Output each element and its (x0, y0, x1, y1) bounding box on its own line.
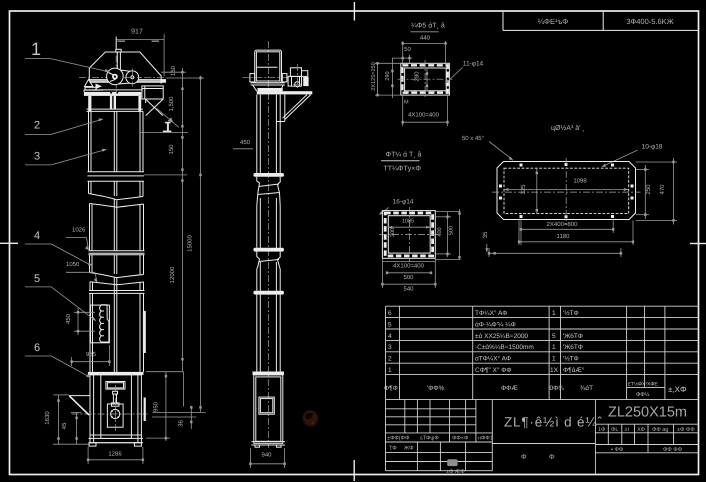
svg-text:1: 1 (552, 344, 556, 351)
svg-text:440: 440 (420, 35, 431, 42)
svg-text:4: 4 (34, 230, 40, 242)
svg-text:6: 6 (34, 342, 40, 354)
svg-text:15000: 15000 (187, 234, 194, 251)
svg-text:ΤΦ: ΤΦ (389, 446, 397, 452)
svg-text:3: 3 (388, 344, 392, 351)
svg-text:'½ΤΦ: '½ΤΦ (563, 310, 579, 317)
svg-text:1180: 1180 (557, 233, 571, 240)
svg-text:917: 917 (131, 29, 143, 36)
svg-text:XΦ: XΦ (637, 427, 646, 433)
svg-text:290: 290 (385, 71, 391, 80)
svg-text:ZL¶·ê½ì d é¼ˆ: ZL¶·ê½ì d é¼ˆ (504, 415, 603, 430)
svg-text:5: 5 (552, 333, 556, 340)
svg-text:¼ΦE¹ъΦ: ¼ΦE¹ъΦ (538, 17, 568, 26)
svg-text:ZL250X15m: ZL250X15m (608, 405, 687, 421)
svg-text:ЖΦ: ЖΦ (404, 446, 414, 452)
svg-text:M: M (404, 100, 409, 106)
svg-text:0Φ¼: 0Φ¼ (550, 385, 565, 392)
svg-text:11-φ14: 11-φ14 (463, 61, 484, 68)
svg-text:ΦΦ×Φ: ΦΦ×Φ (452, 436, 469, 442)
svg-text:36: 36 (178, 420, 185, 427)
svg-text:'ΦΦ%: 'ΦΦ% (427, 385, 445, 392)
svg-text:16-φ14: 16-φ14 (393, 199, 414, 206)
svg-text:цØ½A³ â′ ¸: цØ½A³ â′ ¸ (551, 124, 585, 132)
svg-text:CΦ¶" X° ΦΦ: CΦ¶" X° ΦΦ (475, 367, 512, 374)
svg-text:2: 2 (34, 120, 40, 132)
svg-text:1Φ: 1Φ (598, 427, 606, 433)
svg-text:6: 6 (388, 310, 392, 317)
svg-text:άΦ·¼Φ'¼ ¼Φ: άΦ·¼Φ'¼ ¼Φ (475, 321, 516, 328)
svg-text:45: 45 (61, 422, 68, 429)
svg-text:±ΦΦ(ΦΦ: ±ΦΦ(ΦΦ (387, 436, 410, 442)
svg-text:1X: 1X (550, 367, 559, 374)
svg-text:ΦΦ ag: ΦΦ ag (652, 427, 668, 433)
svg-text:35: 35 (482, 231, 489, 238)
svg-text:▪ ΦΦ: ▪ ΦΦ (611, 447, 624, 453)
svg-text:12000: 12000 (169, 266, 176, 283)
svg-text:280: 280 (414, 71, 421, 82)
svg-text:2X125=250: 2X125=250 (371, 62, 377, 90)
svg-text:ΦL: ΦL (611, 427, 618, 433)
svg-text:950: 950 (153, 401, 160, 412)
svg-text:άΤΦ¼X° AΦ: άΤΦ¼X° AΦ (475, 356, 511, 363)
svg-text:±Φ ΦΦ: ±Φ ΦΦ (677, 427, 695, 433)
svg-text:1630: 1630 (44, 411, 51, 425)
svg-text:ΦΦÆ: ΦΦÆ (501, 385, 518, 392)
svg-text:5: 5 (34, 273, 40, 285)
svg-text:1026: 1026 (72, 227, 86, 234)
svg-text:325: 325 (520, 184, 527, 195)
svg-text:¾άΤ: ¾άΤ (580, 385, 593, 392)
svg-text:1,500: 1,500 (168, 96, 175, 112)
svg-text:1: 1 (552, 356, 556, 363)
svg-text:±ά XX25¼B=2000: ±ά XX25¼B=2000 (475, 333, 528, 340)
svg-text:3Ф400-5.6KЖ: 3Ф400-5.6KЖ (626, 17, 673, 26)
svg-text:4X100=400: 4X100=400 (408, 112, 440, 119)
svg-text:450: 450 (240, 139, 251, 146)
svg-text:±Φ ÆΦ: ±Φ ÆΦ (446, 469, 465, 475)
svg-text:3: 3 (34, 151, 40, 163)
svg-text:1: 1 (31, 39, 41, 59)
svg-text:ΦΤ¼ ά Τ¸ â: ΦΤ¼ ά Τ¸ â (386, 151, 422, 159)
svg-text:940: 940 (261, 452, 272, 459)
svg-text:ΦΦ¼: ΦΦ¼ (636, 392, 650, 398)
svg-text:Φ: Φ (521, 454, 527, 461)
svg-text:250: 250 (645, 184, 652, 195)
svg-text:4: 4 (388, 333, 392, 340)
svg-text:Φ¶άÆ°: Φ¶άÆ° (563, 367, 585, 374)
svg-text:ΦΦ ΦΦ: ΦΦ ΦΦ (663, 447, 683, 453)
svg-text:·C±ά%¼B=1500mm: ·C±ά%¼B=1500mm (475, 344, 534, 351)
svg-text:1050: 1050 (66, 261, 80, 268)
svg-text:500: 500 (449, 226, 455, 235)
svg-text:±,XΦ: ±,XΦ (668, 385, 686, 394)
svg-text:1085: 1085 (402, 219, 414, 225)
svg-text:TΦ¼X° AΦ: TΦ¼X° AΦ (475, 310, 507, 317)
svg-text:985: 985 (86, 351, 97, 358)
svg-text:2X400=800: 2X400=800 (547, 221, 579, 228)
svg-text:300: 300 (390, 228, 396, 237)
svg-text:'Ж6ΤΦ: 'Ж6ΤΦ (563, 333, 583, 340)
svg-text:50: 50 (404, 46, 411, 53)
svg-text:Φ: Φ (549, 454, 555, 461)
svg-text:400: 400 (437, 227, 443, 236)
svg-text:ѕΤΦψΦ: ѕΤΦψΦ (420, 436, 439, 442)
svg-text:ΤΤ¼ΦΤу×Φ: ΤΤ¼ΦΤу×Φ (384, 166, 422, 173)
svg-text:5: 5 (388, 321, 392, 328)
svg-text:±I: ±I (625, 427, 630, 433)
svg-text:'Ж6ΤΦ: 'Ж6ΤΦ (563, 344, 583, 351)
svg-text:150: 150 (168, 144, 175, 155)
svg-text:1: 1 (388, 367, 392, 374)
svg-text:'½ΤΦ: '½ΤΦ (563, 356, 579, 363)
svg-text:470: 470 (659, 184, 666, 195)
svg-text:10-φ18: 10-φ18 (642, 144, 663, 151)
svg-text:500: 500 (403, 274, 414, 281)
svg-text:450: 450 (65, 313, 72, 324)
svg-text:нΦΦ1: нΦΦ1 (478, 436, 493, 442)
svg-text:4X100=400: 4X100=400 (393, 262, 425, 269)
svg-text:1: 1 (552, 310, 556, 317)
svg-text:150: 150 (170, 65, 177, 76)
svg-text:1286: 1286 (108, 451, 122, 458)
svg-text:2: 2 (388, 356, 392, 363)
svg-text:1098: 1098 (573, 178, 587, 185)
svg-text:£T½ΦX¹XΦE: £T½ΦX¹XΦE (628, 382, 658, 388)
svg-text:540: 540 (403, 286, 414, 293)
svg-text:¼Φ5 άΤ¸ â: ¼Φ5 άΤ¸ â (411, 22, 445, 30)
svg-text:50 x 45°: 50 x 45° (462, 135, 485, 142)
svg-text:Φ¶Φ: Φ¶Φ (384, 385, 398, 392)
